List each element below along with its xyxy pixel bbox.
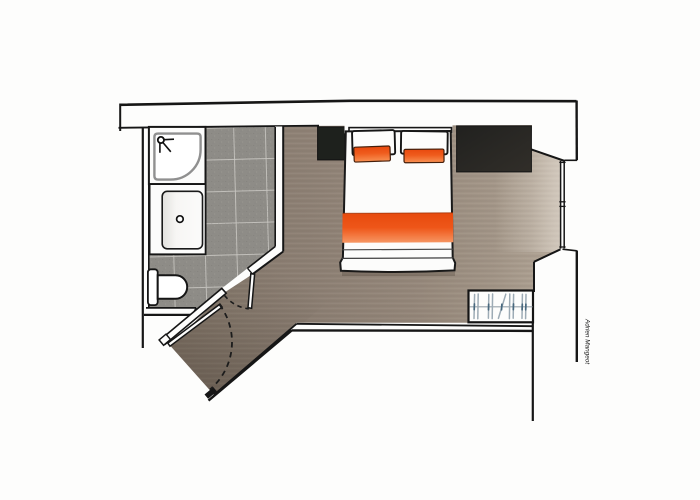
svg-text:Adrien Mangeot: Adrien Mangeot xyxy=(584,318,591,364)
